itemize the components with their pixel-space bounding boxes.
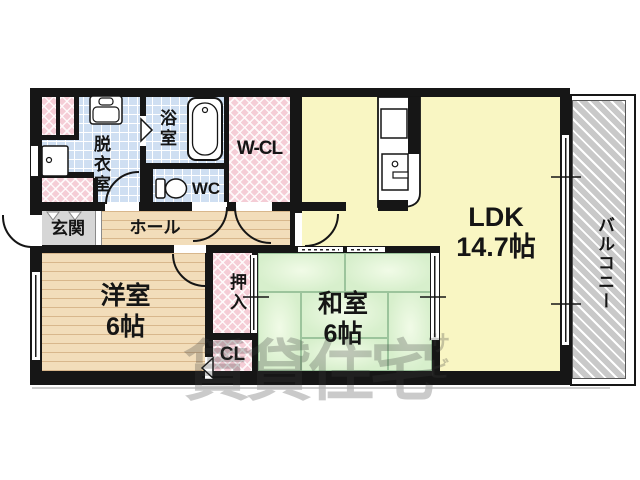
oshiire-label: 押入 [221, 260, 245, 326]
kitchen-wall-stub [408, 97, 420, 154]
balcony-label: バルコニー [589, 188, 613, 338]
kitchen-counter-icon [378, 97, 420, 211]
wc-door-arc [193, 207, 227, 241]
hall-label: ホール [119, 219, 191, 237]
dressing-door-arc [106, 172, 139, 204]
toilet-icon [156, 179, 187, 198]
wc-label: WC [187, 180, 225, 198]
ldk-label: LDK [420, 203, 572, 231]
bathtub-icon [188, 98, 222, 160]
closet-folding-door-icon [202, 358, 213, 378]
entrance-label: 玄関 [44, 220, 92, 238]
shadow-line [32, 387, 610, 389]
stove-icon [381, 109, 407, 138]
washing-machine-icon [90, 96, 122, 124]
ldk-size-label: 14.7帖 [420, 233, 572, 261]
floorplan: LDK 14.7帖 和室 6帖 洋室 6帖 押入 CL W-CL WC 浴室 脱… [0, 0, 640, 480]
entrance-door-arc [3, 215, 31, 247]
japanese-room-size-label: 6帖 [280, 321, 406, 347]
western-room-size-label: 6帖 [58, 314, 193, 340]
closet-label: CL [214, 345, 251, 365]
wcl-label: W-CL [229, 139, 290, 159]
faucet-icon [392, 161, 398, 167]
hall-ldk-door-arc [305, 214, 338, 246]
bathroom-label: 浴室 [151, 101, 175, 157]
vanity-sink-icon [42, 146, 68, 176]
faucet-handle-icon [393, 172, 408, 178]
japanese-room-label: 和室 [280, 291, 406, 317]
western-room-label: 洋室 [58, 283, 193, 309]
wcl-door-arc [235, 207, 271, 243]
western-room-door-arc [173, 254, 205, 286]
kitchen-wall-stub [378, 200, 408, 211]
dressing-room-label: 脱衣室 [85, 129, 109, 201]
